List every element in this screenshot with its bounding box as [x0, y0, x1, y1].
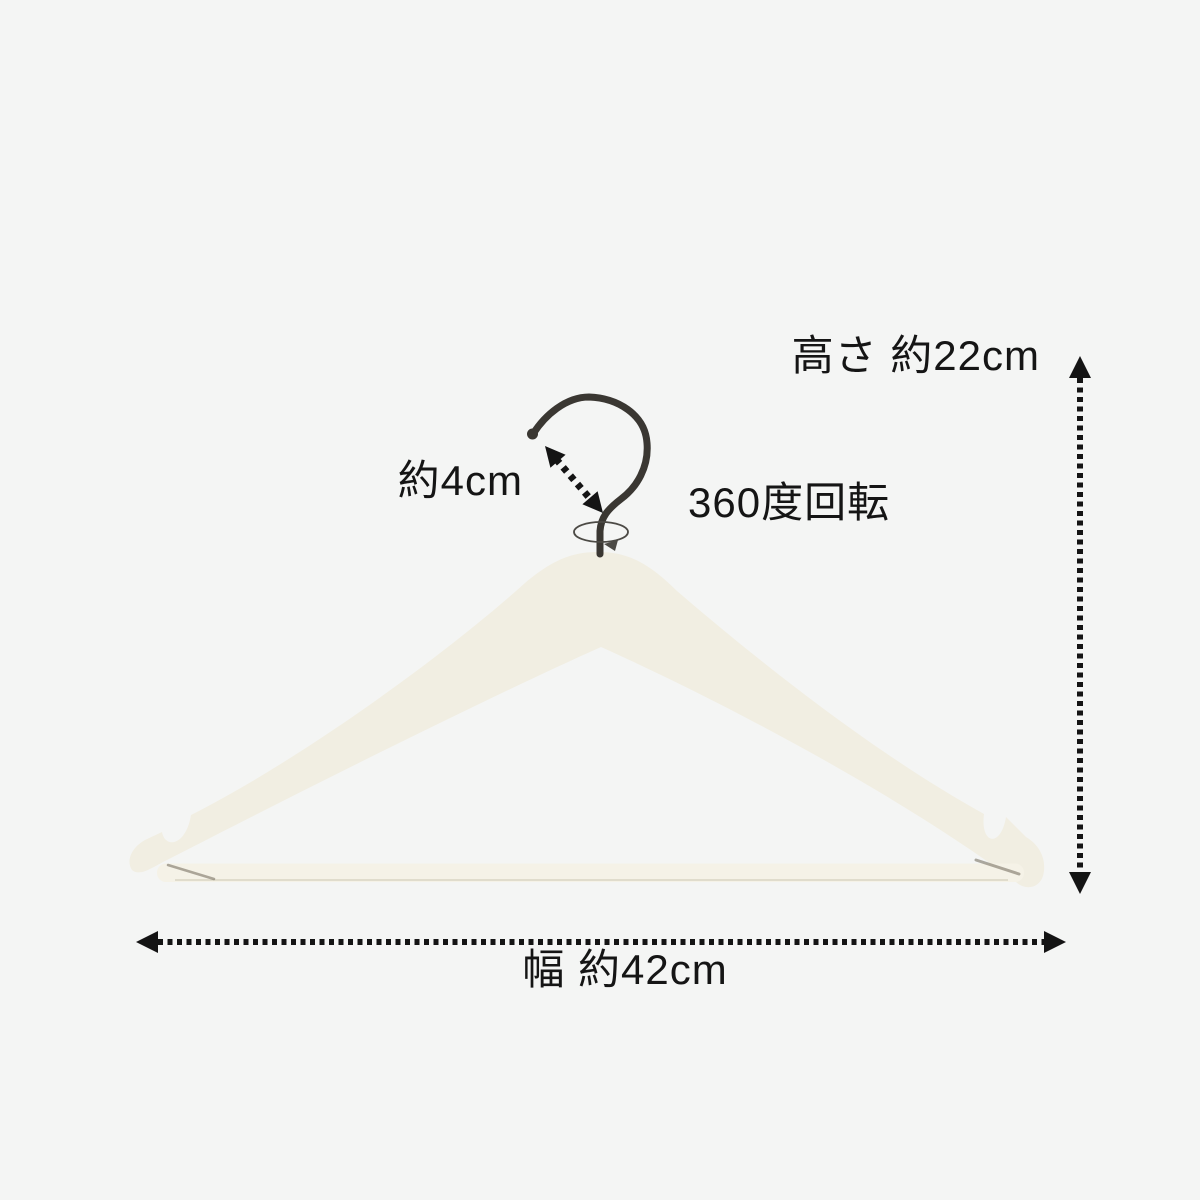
hanger-illustration: [0, 0, 1200, 1200]
rotation-label: 360度回転: [688, 482, 890, 524]
width-dimension-label: 幅 約42cm: [522, 949, 727, 991]
product-dimension-image: 高さ 約22cm 約4cm 360度回転 幅 約42cm: [0, 0, 1200, 1200]
hanger-hook: [533, 397, 647, 554]
height-dimension-arrow: [1069, 356, 1091, 894]
hook-tip-ball-icon: [527, 429, 538, 440]
hanger-body: [130, 552, 1045, 887]
height-dimension-label: 高さ 約22cm: [792, 335, 1040, 377]
hook-length-arrow: [545, 446, 603, 513]
hook-length-label: 約4cm: [398, 460, 523, 502]
hanger: [130, 397, 1045, 887]
